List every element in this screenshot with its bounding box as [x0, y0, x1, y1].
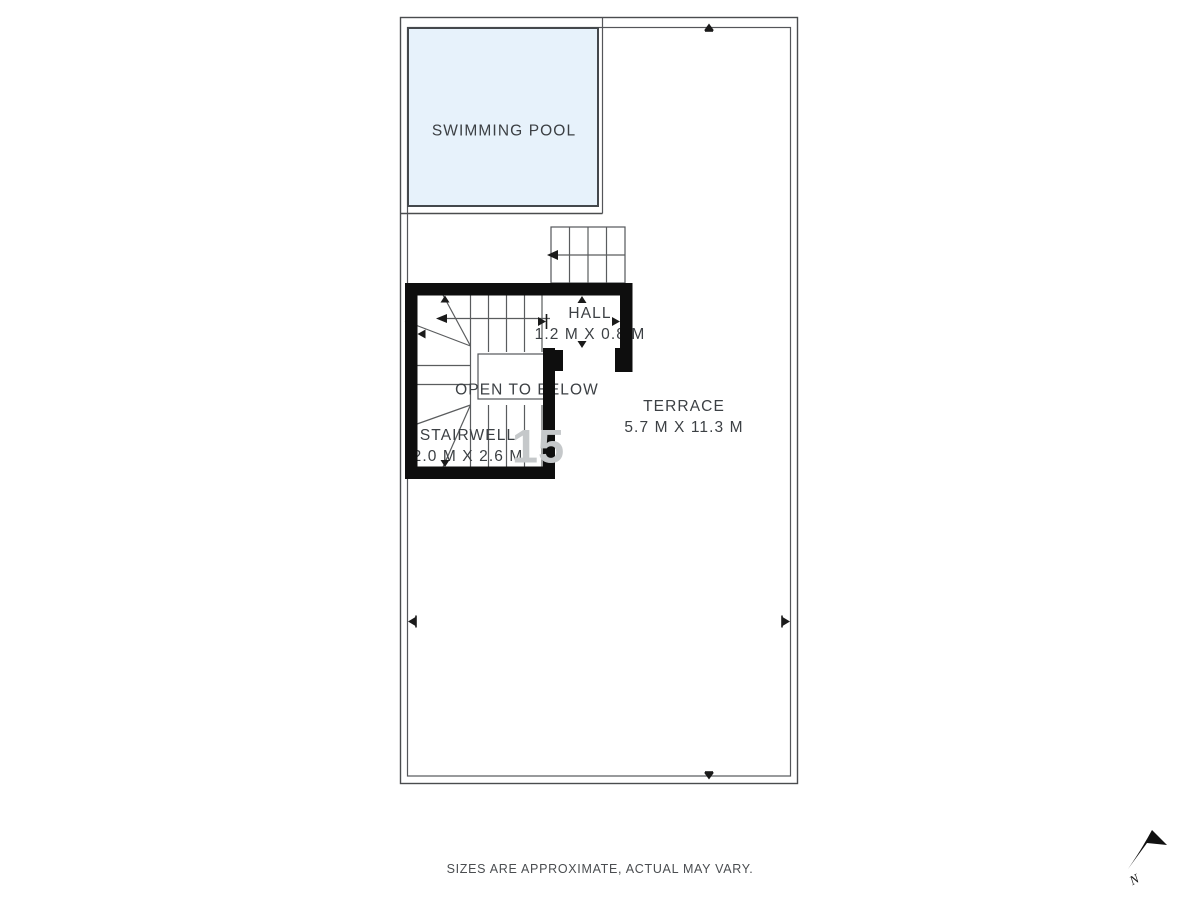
room-label-terrace: TERRACE 5.7 M X 11.3 M [624, 396, 743, 438]
room-label-stairwell: STAIRWELL 2.0 M X 2.6 M [413, 425, 524, 467]
room-dimensions: 2.0 M X 2.6 M [413, 446, 524, 467]
north-label: N [1126, 870, 1143, 888]
room-name: TERRACE [624, 396, 743, 417]
interior-walls [0, 0, 1200, 900]
room-name: SWIMMING POOL [432, 121, 576, 142]
stair-direction-arrow [436, 314, 447, 323]
watermark: 15 [512, 419, 564, 474]
room-name: OPEN TO BELOW [455, 380, 599, 401]
room-label-hall: HALL 1.2 M X 0.8 M [535, 303, 646, 345]
swimming-pool-shape [401, 18, 603, 214]
room-label-open-to-below: OPEN TO BELOW [455, 380, 599, 401]
room-dimensions: 1.2 M X 0.8 M [535, 324, 646, 345]
room-dimensions: 5.7 M X 11.3 M [624, 417, 743, 438]
exterior-stairs [547, 227, 625, 283]
disclaimer-note: SIZES ARE APPROXIMATE, ACTUAL MAY VARY. [447, 862, 754, 876]
room-label-swimming-pool: SWIMMING POOL [432, 121, 576, 142]
north-arrow-icon: N [1122, 828, 1182, 890]
stair-direction-arrow [547, 250, 558, 260]
floor-plan-linework [0, 0, 1200, 900]
floor-plan-canvas: SWIMMING POOL HALL 1.2 M X 0.8 M OPEN TO… [0, 0, 1200, 900]
room-name: STAIRWELL [413, 425, 524, 446]
room-name: HALL [535, 303, 646, 324]
